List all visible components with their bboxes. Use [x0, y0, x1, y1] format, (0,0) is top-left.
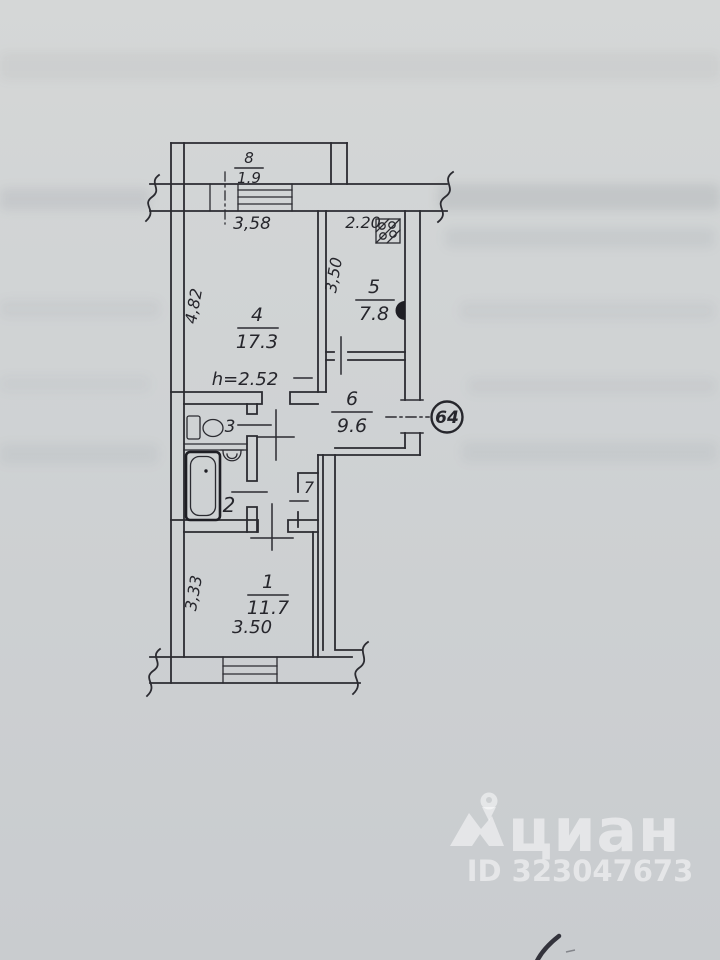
dim-room1-width: 3.50: [232, 617, 272, 638]
room1-label: 1 11.7: [247, 571, 289, 619]
room5-area: 7.8: [359, 303, 389, 325]
room4-label: 4 17.3: [236, 304, 278, 353]
sink-icon: [221, 450, 243, 461]
room4-area: 17.3: [236, 331, 278, 353]
stairwell-wall: [313, 455, 362, 657]
scanned-floorplan-page: 64 8: [0, 0, 720, 960]
room8-label: 8 1.9: [235, 149, 263, 187]
room4-number: 4: [251, 304, 263, 326]
stove-icon: [396, 301, 406, 320]
room4-door-tick: [258, 410, 294, 460]
cian-watermark: циан ID 323047673: [450, 793, 693, 889]
room5-number: 5: [368, 276, 380, 298]
top-wall: [150, 184, 447, 211]
room5-label: 5 7.8: [356, 276, 394, 325]
bottom-wall: [150, 657, 360, 683]
wall-break-icon: [438, 172, 453, 222]
ceiling-height-label: h=2.52: [212, 369, 279, 390]
dim-balcony-width: 3,58: [233, 214, 271, 234]
hall-bottom-wall: [318, 448, 420, 455]
watermark-id: ID 323047673: [467, 854, 694, 888]
right-wall: [405, 211, 420, 455]
cian-logo-icon: [450, 793, 504, 847]
floor-plan-svg: 64 8: [0, 0, 720, 960]
room4-bottom-wall: [171, 392, 326, 404]
dim-kitchen-width: 2.20: [345, 213, 381, 232]
room8-area: 1.9: [237, 169, 261, 187]
kitchen-hall-wall: [326, 352, 405, 360]
room6-area: 9.6: [337, 415, 367, 437]
room1-number: 1: [262, 571, 274, 593]
wall-break-icon: [146, 175, 159, 221]
room1-area: 11.7: [247, 597, 289, 619]
wall-break-icon: [147, 649, 160, 696]
toilet-icon: [187, 416, 223, 439]
room7-number: 7: [304, 478, 315, 497]
dim-kitchen-depth: 3,50: [321, 256, 346, 294]
apartment-number: 64: [435, 408, 459, 428]
room3-number: 3: [225, 417, 236, 437]
room6-label: 6 9.6: [332, 388, 372, 437]
bathtub-icon: [186, 452, 220, 520]
room8-number: 8: [244, 149, 254, 167]
bathblock-wall: [247, 404, 257, 532]
walls: [146, 143, 453, 696]
room1-top-wall: [171, 520, 318, 532]
apartment-number-badge: 64: [432, 402, 463, 433]
wc-bath-wall: [184, 444, 247, 450]
room1-window: [223, 657, 277, 683]
room2-number: 2: [223, 493, 236, 517]
room4-kitchen-wall: [318, 211, 326, 392]
room6-number: 6: [346, 388, 358, 410]
pen-stroke: [536, 936, 575, 960]
